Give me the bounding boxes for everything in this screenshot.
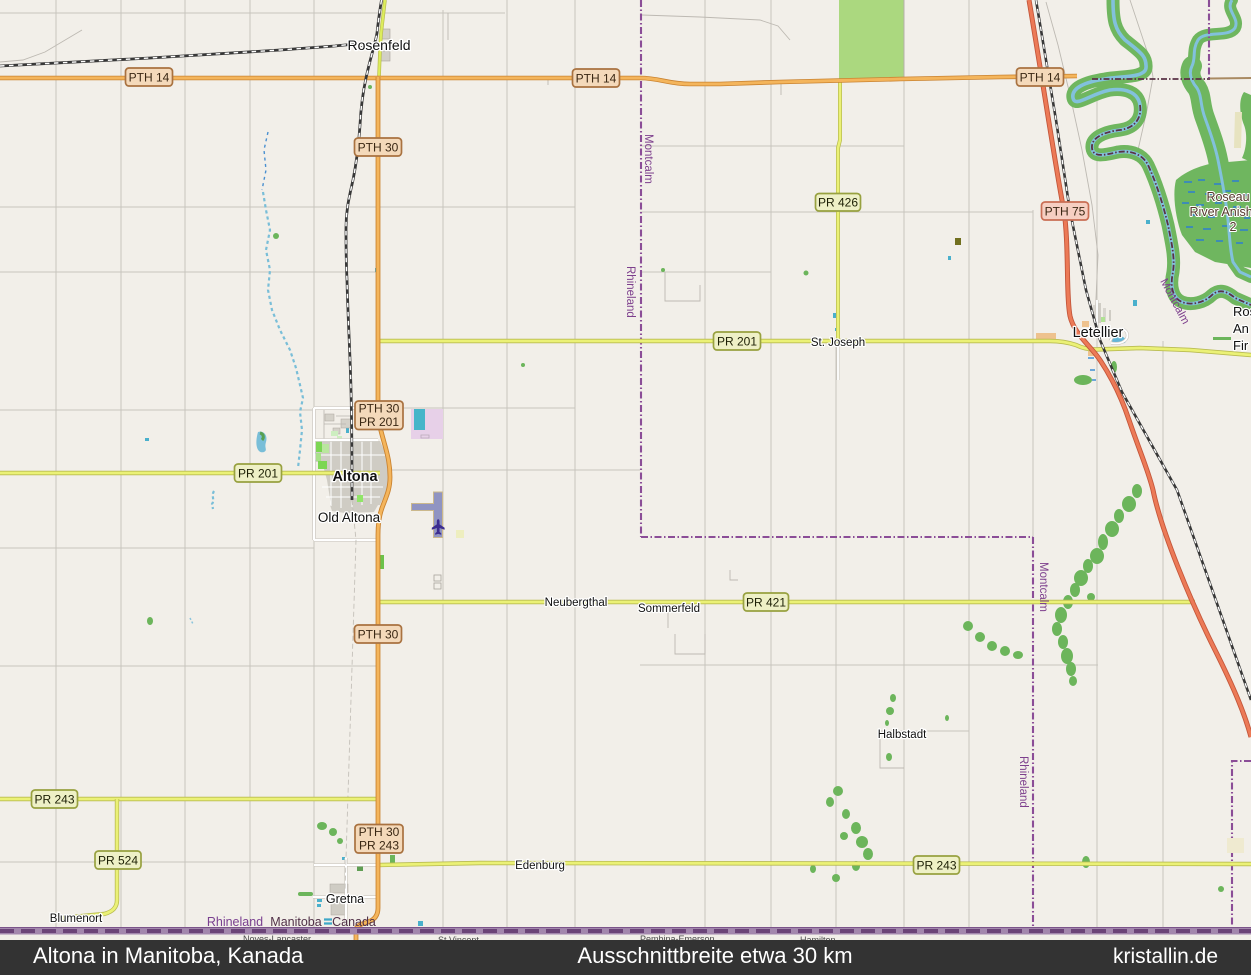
svg-text:Fir: Fir: [1233, 338, 1249, 353]
svg-text:Montcalm: Montcalm: [642, 134, 654, 184]
svg-text:Ausschnittbreite etwa 30 km: Ausschnittbreite etwa 30 km: [577, 943, 852, 968]
svg-text:Edenburg: Edenburg: [515, 860, 565, 872]
svg-text:Halbstadt: Halbstadt: [878, 729, 927, 741]
svg-text:PR 426: PR 426: [818, 196, 858, 210]
svg-text:PTH 14: PTH 14: [129, 71, 170, 85]
svg-text:Gretna: Gretna: [326, 892, 364, 906]
svg-text:kristallin.de: kristallin.de: [1113, 945, 1218, 968]
svg-text:PTH 14: PTH 14: [1020, 71, 1061, 85]
svg-text:St. Joseph: St. Joseph: [811, 337, 865, 349]
svg-text:Manitoba: Manitoba: [270, 915, 321, 929]
svg-text:Blumenort: Blumenort: [50, 913, 103, 925]
svg-text:Rosenfeld: Rosenfeld: [347, 37, 410, 53]
svg-text:PR 243: PR 243: [359, 839, 399, 853]
svg-text:PR 201: PR 201: [238, 467, 278, 481]
svg-text:Altona: Altona: [332, 469, 378, 485]
svg-text:PTH 30: PTH 30: [359, 402, 400, 416]
svg-text:Montcalm: Montcalm: [1037, 562, 1049, 612]
svg-text:PTH 30: PTH 30: [358, 141, 399, 155]
svg-text:PR 524: PR 524: [98, 854, 138, 868]
svg-text:PR 243: PR 243: [34, 793, 74, 807]
svg-text:PTH 30: PTH 30: [359, 825, 400, 839]
svg-text:PTH 30: PTH 30: [358, 628, 399, 642]
svg-text:Ros: Ros: [1233, 304, 1251, 319]
svg-text:Neubergthal: Neubergthal: [545, 597, 608, 609]
svg-text:PR 421: PR 421: [746, 596, 786, 610]
svg-text:An: An: [1233, 321, 1249, 336]
svg-text:PR 201: PR 201: [717, 335, 757, 349]
svg-text:Letellier: Letellier: [1073, 325, 1124, 341]
svg-text:2: 2: [1230, 220, 1237, 234]
svg-text:River Anishin: River Anishin: [1190, 205, 1251, 219]
svg-text:Rhineland: Rhineland: [1017, 756, 1029, 808]
svg-text:PR 243: PR 243: [916, 859, 956, 873]
svg-text:PTH 75: PTH 75: [1045, 205, 1086, 219]
svg-text:PTH 14: PTH 14: [576, 72, 617, 86]
svg-text:Sommerfeld: Sommerfeld: [638, 603, 700, 615]
svg-text:PR 201: PR 201: [359, 415, 399, 429]
svg-text:Roseau: Roseau: [1206, 190, 1249, 204]
svg-text:Rhineland: Rhineland: [624, 266, 636, 318]
svg-text:Rhineland: Rhineland: [207, 915, 263, 929]
svg-text:Altona in Manitoba, Kanada: Altona in Manitoba, Kanada: [33, 943, 304, 968]
svg-text:Old Altona: Old Altona: [318, 510, 381, 525]
svg-text:Canada: Canada: [332, 915, 376, 929]
